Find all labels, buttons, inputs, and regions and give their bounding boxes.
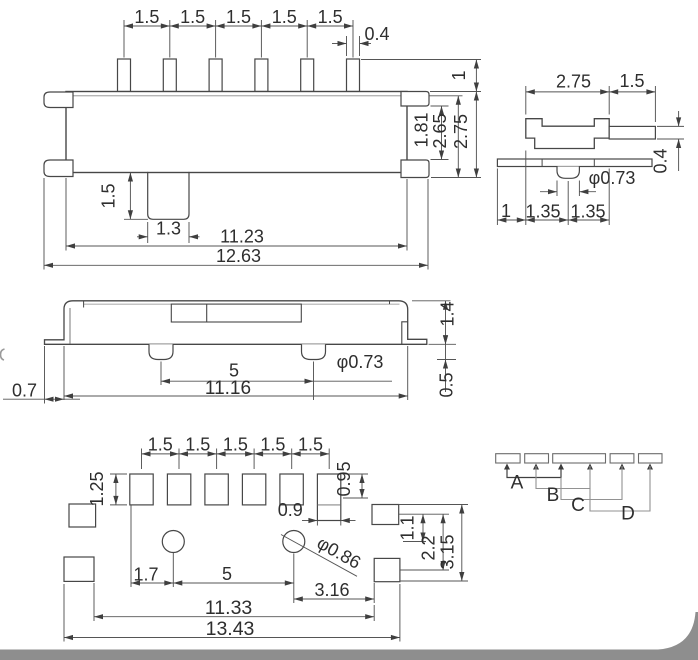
svg-text:C: C <box>571 495 585 516</box>
svg-text:1: 1 <box>449 70 469 80</box>
svg-text:φ0.73: φ0.73 <box>337 352 384 372</box>
svg-text:0.4: 0.4 <box>651 148 671 173</box>
svg-text:1.25: 1.25 <box>87 471 107 506</box>
svg-text:11.23: 11.23 <box>220 227 264 247</box>
svg-text:φ0.73: φ0.73 <box>589 168 636 188</box>
svg-text:A: A <box>511 473 524 494</box>
svg-text:2.2: 2.2 <box>419 535 439 560</box>
svg-text:1.4: 1.4 <box>438 301 458 326</box>
svg-text:2.75: 2.75 <box>556 72 591 92</box>
svg-text:5: 5 <box>222 564 232 584</box>
svg-text:1.5: 1.5 <box>298 435 323 455</box>
svg-text:1.35: 1.35 <box>525 202 560 222</box>
svg-text:1.5: 1.5 <box>260 435 285 455</box>
svg-text:1.5: 1.5 <box>185 435 210 455</box>
svg-text:0.5: 0.5 <box>437 372 457 397</box>
svg-text:2.75: 2.75 <box>451 114 471 149</box>
svg-text:13.43: 13.43 <box>206 618 255 640</box>
svg-text:1.7: 1.7 <box>133 565 158 585</box>
svg-text:1.81: 1.81 <box>412 112 432 147</box>
svg-text:B: B <box>547 485 560 506</box>
svg-text:1.5: 1.5 <box>223 435 248 455</box>
svg-text:1.5: 1.5 <box>180 7 205 27</box>
svg-text:0.95: 0.95 <box>334 461 354 496</box>
svg-text:11.16: 11.16 <box>205 378 251 399</box>
svg-text:1.5: 1.5 <box>318 7 343 27</box>
svg-text:1.3: 1.3 <box>156 219 181 239</box>
svg-text:11.33: 11.33 <box>205 597 252 619</box>
svg-text:1: 1 <box>501 201 511 221</box>
svg-text:1.5: 1.5 <box>272 7 297 27</box>
svg-text:3.15: 3.15 <box>438 534 458 569</box>
svg-text:1.5: 1.5 <box>99 183 119 208</box>
svg-text:2.65: 2.65 <box>430 113 450 148</box>
svg-text:0.4: 0.4 <box>364 24 389 44</box>
svg-text:12.63: 12.63 <box>216 246 261 266</box>
svg-text:0.7: 0.7 <box>12 381 37 401</box>
svg-text:1.5: 1.5 <box>619 71 644 91</box>
svg-text:1.5: 1.5 <box>148 435 173 455</box>
svg-text:3.16: 3.16 <box>314 580 349 600</box>
svg-text:1.5: 1.5 <box>226 7 251 27</box>
svg-text:1.5: 1.5 <box>134 7 159 27</box>
svg-text:0.9: 0.9 <box>278 500 303 520</box>
svg-text:D: D <box>621 504 635 525</box>
svg-text:1.1: 1.1 <box>398 515 418 540</box>
svg-text:1.35: 1.35 <box>570 202 605 222</box>
